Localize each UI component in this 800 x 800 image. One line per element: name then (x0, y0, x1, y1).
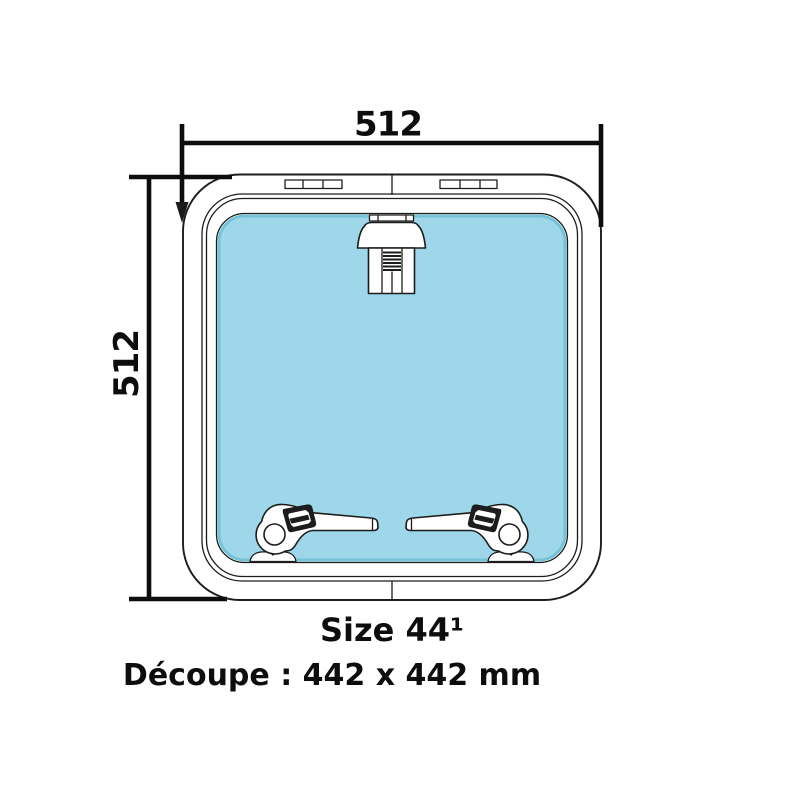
hatch (183, 175, 601, 601)
friction-stay (358, 215, 426, 294)
handle-pivot (264, 524, 285, 545)
stay-cap (358, 223, 426, 249)
captions: Size 44¹ Découpe : 442 x 442 mm (123, 611, 541, 693)
stay-mount-bar (370, 215, 414, 221)
height-dimension-label: 512 (107, 330, 147, 398)
cutout-caption: Découpe : 442 x 442 mm (123, 658, 541, 693)
hatch-dimension-diagram: 512 512 Size 44¹ Découpe : 442 x 442 mm (0, 0, 800, 800)
width-dimension-label: 512 (354, 105, 422, 145)
size-caption: Size 44¹ (320, 611, 464, 649)
diagram-canvas: 512 512 Size 44¹ Découpe : 442 x 442 mm (0, 0, 800, 800)
